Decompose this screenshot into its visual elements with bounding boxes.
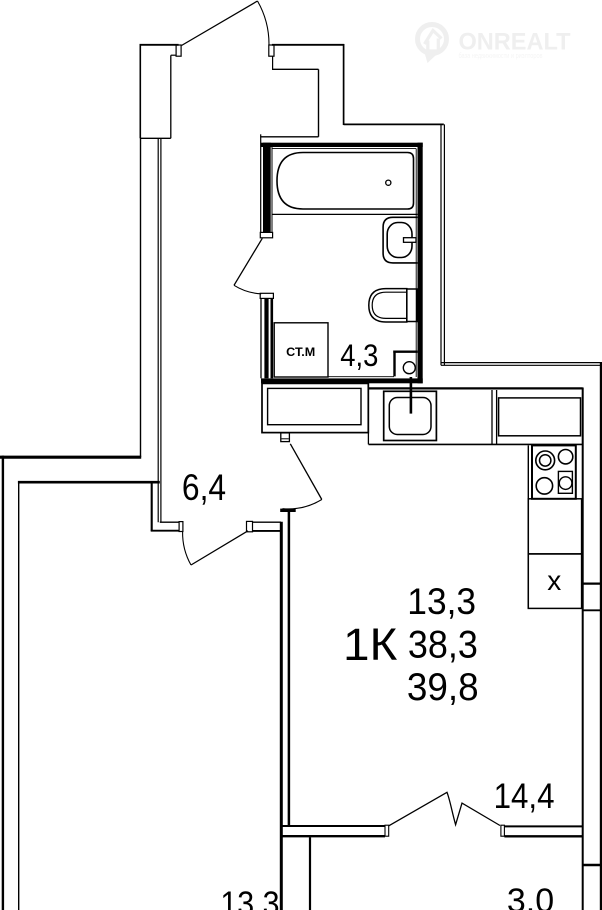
svg-text:1К: 1К [343, 619, 398, 670]
svg-text:38,3: 38,3 [408, 624, 478, 667]
svg-text:4,3: 4,3 [340, 337, 378, 373]
svg-text:39,8: 39,8 [407, 666, 479, 709]
svg-text:СТ.М: СТ.М [286, 345, 315, 359]
svg-text:13,3: 13,3 [407, 581, 476, 622]
svg-text:3.0: 3.0 [507, 882, 554, 910]
svg-text:база недвижимости и риэлторов: база недвижимости и риэлторов [459, 51, 543, 60]
svg-text:x: x [547, 565, 561, 596]
svg-text:13.3: 13.3 [220, 885, 279, 910]
svg-text:6,4: 6,4 [182, 467, 226, 508]
svg-text:14,4: 14,4 [494, 777, 555, 816]
